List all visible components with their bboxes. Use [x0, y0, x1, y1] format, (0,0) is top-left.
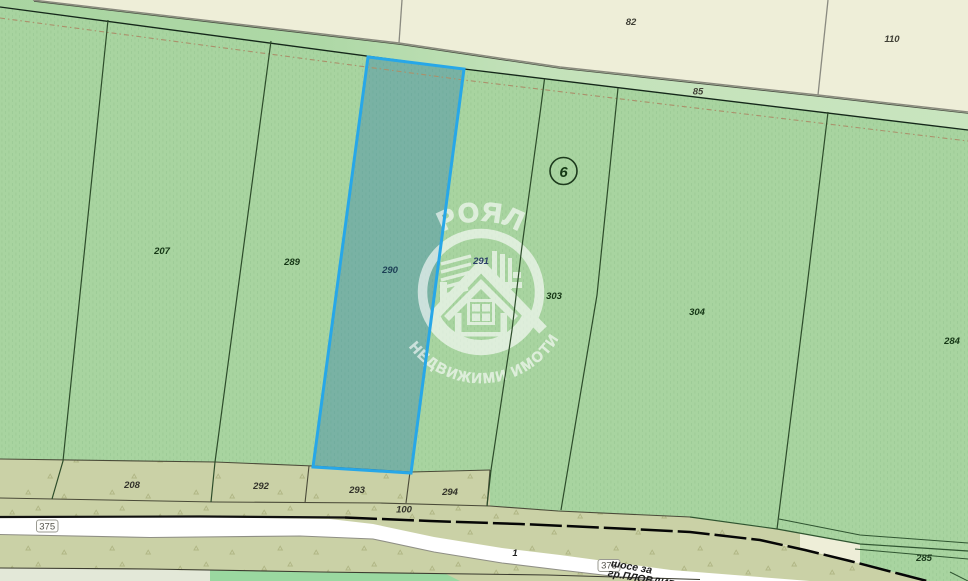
- svg-text:284: 284: [943, 336, 961, 347]
- svg-text:285: 285: [915, 553, 933, 564]
- svg-text:289: 289: [283, 257, 301, 268]
- svg-text:290: 290: [381, 265, 399, 276]
- svg-text:292: 292: [252, 481, 270, 492]
- svg-text:6: 6: [559, 164, 568, 181]
- svg-text:291: 291: [472, 256, 489, 267]
- svg-text:375: 375: [39, 522, 55, 533]
- svg-text:208: 208: [123, 480, 141, 491]
- svg-text:207: 207: [153, 246, 171, 257]
- svg-text:293: 293: [348, 485, 366, 496]
- svg-text:303: 303: [546, 291, 563, 302]
- svg-text:110: 110: [884, 34, 900, 45]
- svg-text:85: 85: [693, 87, 704, 98]
- svg-text:82: 82: [626, 17, 637, 28]
- svg-text:294: 294: [441, 487, 459, 498]
- svg-text:1: 1: [512, 548, 517, 559]
- svg-text:304: 304: [689, 307, 706, 318]
- svg-text:100: 100: [396, 505, 413, 516]
